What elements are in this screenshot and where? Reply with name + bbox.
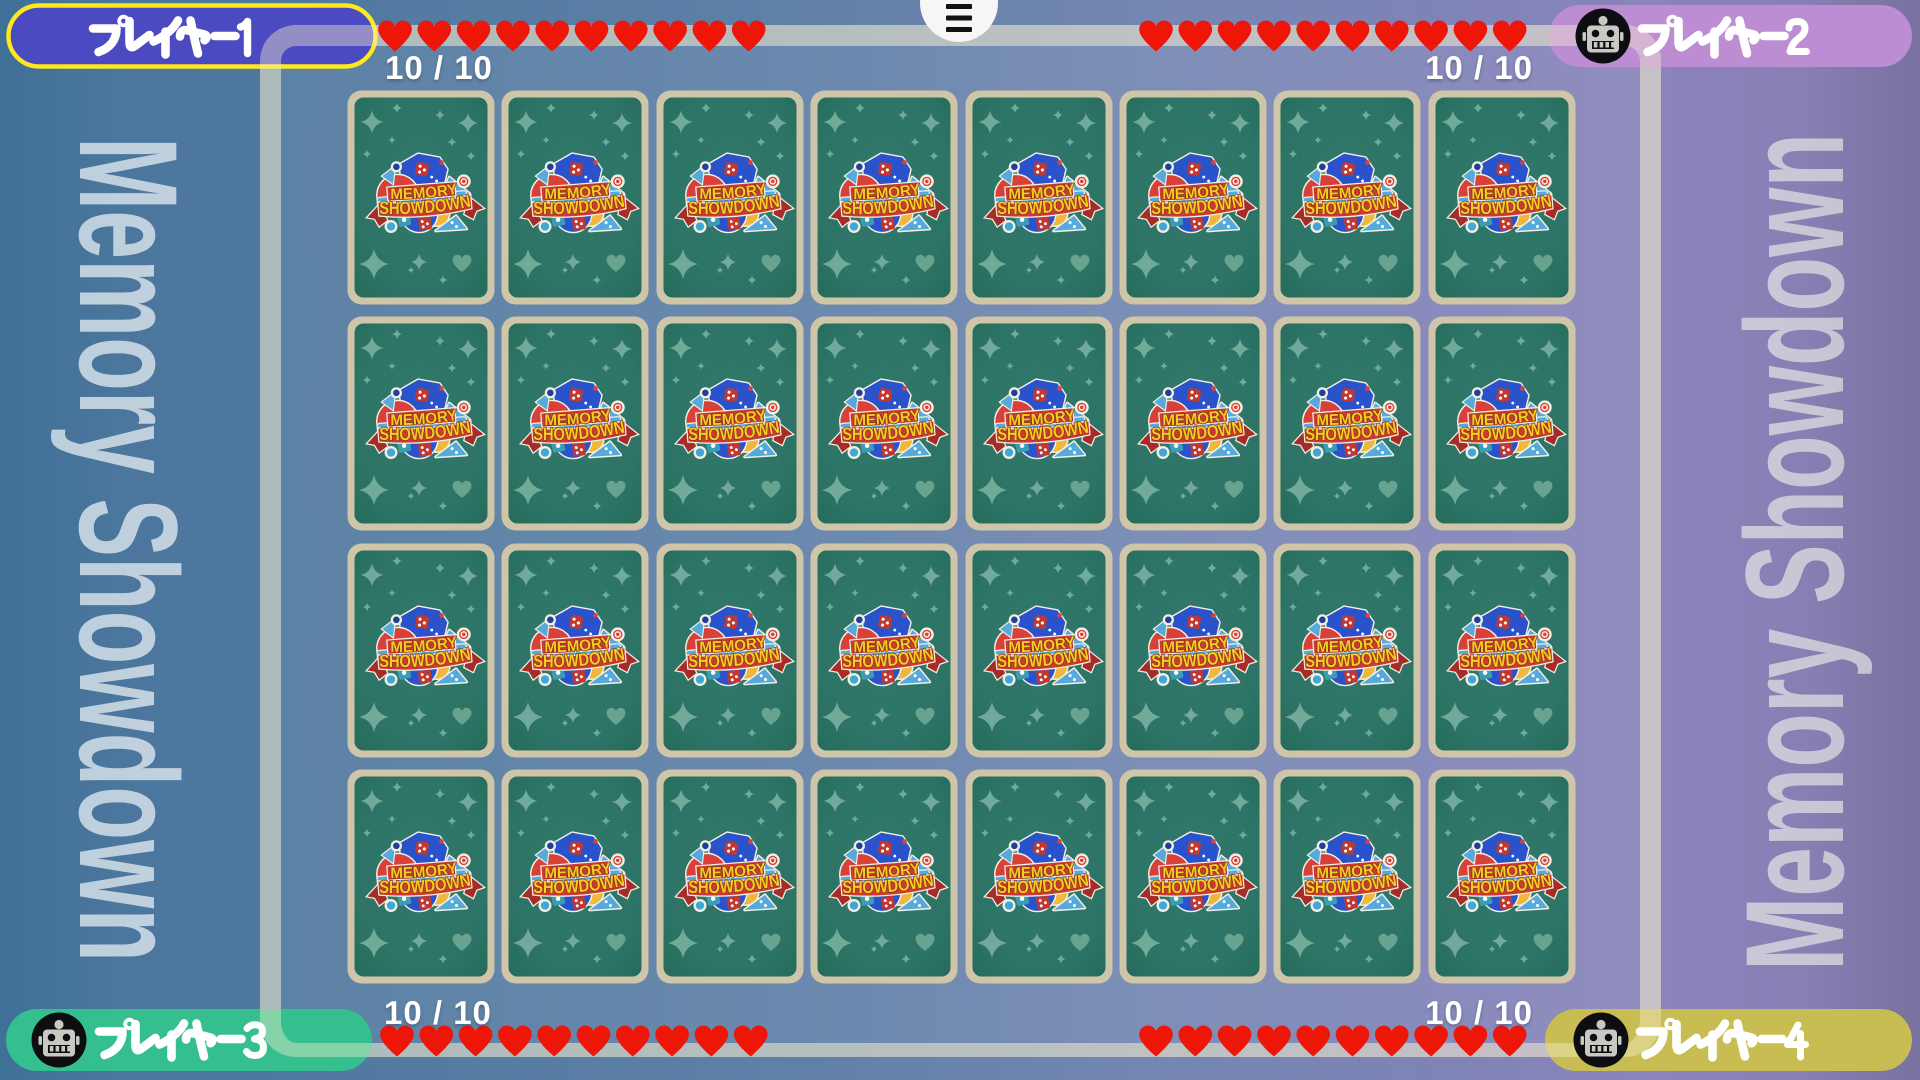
svg-text:Memory Showdown: Memory Showdown: [1716, 133, 1873, 971]
svg-text:Memory Showdown: Memory Showdown: [50, 137, 207, 962]
